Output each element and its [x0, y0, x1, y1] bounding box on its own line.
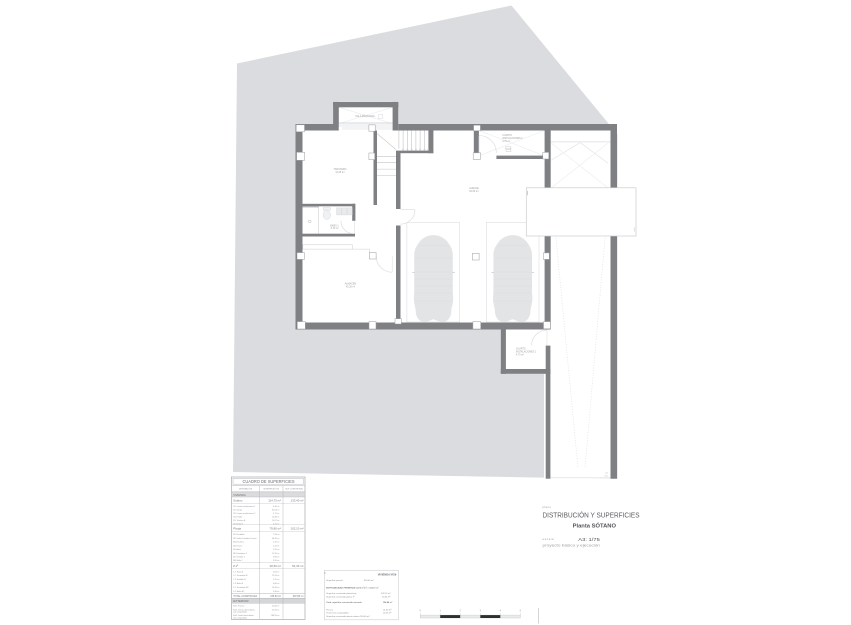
svg-text:(no computable): (no computable)	[233, 611, 247, 614]
svg-text:3,70 m²: 3,70 m²	[331, 227, 339, 230]
svg-text:Piscina: Piscina	[326, 609, 334, 611]
svg-text:1.6. Baño B2: 1.6. Baño B2	[233, 590, 244, 593]
svg-text:3: 3	[480, 609, 482, 613]
svg-text:21,40 m²: 21,40 m²	[383, 608, 392, 611]
svg-text:5: 5	[520, 609, 522, 613]
svg-text:proyecto básico y ejecución: proyecto básico y ejecución	[543, 544, 601, 548]
svg-text:10,35 m²: 10,35 m²	[272, 586, 280, 589]
svg-text:10,30 m²: 10,30 m²	[272, 515, 280, 518]
svg-text:4,75 m²: 4,75 m²	[502, 140, 510, 143]
svg-text:114,75 m²: 114,75 m²	[268, 499, 281, 503]
svg-text:418,00 m²: 418,00 m²	[364, 579, 374, 582]
svg-text:11,25 m²: 11,25 m²	[335, 171, 344, 174]
svg-text:B3. Escalera: B3. Escalera	[233, 541, 245, 544]
svg-text:1.1. Paso B: 1.1. Paso B	[233, 571, 244, 573]
svg-text:154,48 m²: 154,48 m²	[383, 601, 393, 604]
svg-text:1.2. Dormitorio B: 1.2. Dormitorio B	[233, 574, 248, 577]
svg-text:102,10 m²: 102,10 m²	[290, 526, 303, 530]
svg-text:INSTALACIONES 2: INSTALACIONES 2	[502, 137, 523, 140]
svg-text:TOTAL CONSTRUIDA: TOTAL CONSTRUIDA	[233, 595, 257, 598]
svg-text:B7. Vestidor 1: B7. Vestidor 1	[233, 556, 245, 559]
svg-text:3,90 m²: 3,90 m²	[273, 559, 280, 562]
svg-text:236,50 m²: 236,50 m²	[270, 595, 281, 598]
svg-text:Planta SÓTANO: Planta SÓTANO	[573, 521, 617, 529]
svg-text:29,50 m²: 29,50 m²	[270, 564, 281, 568]
svg-text:EXTERIOR: EXTERIOR	[233, 599, 249, 603]
svg-text:(no computable): (no computable)	[233, 617, 247, 620]
svg-text:102,13 m²: 102,13 m²	[381, 592, 391, 595]
svg-text:21,40 m²: 21,40 m²	[272, 605, 280, 608]
svg-text:22,55 m²: 22,55 m²	[383, 612, 392, 615]
svg-text:escala: escala	[543, 537, 554, 541]
svg-text:287,85 m²: 287,85 m²	[293, 595, 304, 598]
svg-text:Superficie construida abierta: Superficie construida abierta sótano 130…	[326, 615, 369, 618]
svg-text:44,45 m²: 44,45 m²	[272, 537, 280, 540]
svg-text:Sótano: Sótano	[233, 499, 243, 503]
svg-text:133,40 m²: 133,40 m²	[290, 499, 303, 503]
svg-text:DESIGNACIÓN: DESIGNACIÓN	[239, 488, 253, 491]
svg-text:2,80 m²: 2,80 m²	[273, 556, 280, 559]
svg-text:P.baja: P.baja	[233, 526, 241, 530]
svg-text:0: 0	[419, 609, 421, 613]
svg-text:DISTRIBUCIÓN Y SUPERFICIES: DISTRIBUCIÓN Y SUPERFICIES	[543, 511, 640, 520]
svg-text:B6. Dormitorio 1: B6. Dormitorio 1	[233, 552, 247, 555]
svg-text:2: 2	[459, 609, 461, 613]
svg-text:4,30 m²: 4,30 m²	[273, 590, 280, 593]
svg-text:62,56 m²: 62,56 m²	[272, 508, 280, 511]
svg-text:4,75 m²: 4,75 m²	[516, 353, 524, 356]
svg-text:10,97 m²: 10,97 m²	[272, 519, 280, 522]
svg-text:S4. Pasillo: S4. Pasillo	[233, 516, 242, 518]
svg-text:4,60 m²: 4,60 m²	[273, 582, 280, 585]
svg-text:Total superficie construida vi: Total superficie construida vivienda	[326, 601, 362, 604]
svg-text:S1. Cuarto instalaciones 1: S1. Cuarto instalaciones 1	[233, 505, 255, 508]
svg-text:B8. Baño 1: B8. Baño 1	[233, 559, 242, 562]
svg-text:Ext1. Piscina: Ext1. Piscina	[233, 605, 245, 608]
svg-text:52,36 m²: 52,36 m²	[382, 595, 391, 598]
svg-text:B1. Recibidor: B1. Recibidor	[233, 533, 245, 536]
svg-text:VIVIENDA Nº29: VIVIENDA Nº29	[378, 572, 397, 576]
svg-text:Superficie parcela: Superficie parcela	[326, 579, 343, 582]
svg-text:1.3. Vestidor B: 1.3. Vestidor B	[233, 578, 246, 581]
svg-text:1: 1	[439, 609, 441, 613]
svg-text:Superficie construida planta b: Superficie construida planta baja	[326, 592, 357, 595]
svg-text:S5. Trastero B: S5. Trastero B	[233, 519, 246, 522]
svg-text:11,35 m²: 11,35 m²	[272, 552, 280, 555]
svg-text:INSTALACIONES 1: INSTALACIONES 1	[516, 351, 537, 354]
svg-text:Porche (no computable): Porche (no computable)	[326, 612, 348, 615]
svg-text:BAÑO 1: BAÑO 1	[330, 224, 339, 227]
svg-text:1,35 m²: 1,35 m²	[273, 544, 280, 547]
svg-text:plano: plano	[543, 505, 552, 509]
svg-text:4: 4	[500, 609, 502, 613]
svg-text:CUARTO: CUARTO	[502, 134, 512, 137]
svg-text:5,15 m²: 5,15 m²	[273, 541, 280, 544]
svg-text:25,35 m²: 25,35 m²	[272, 608, 280, 611]
svg-text:VIVIENDA: VIVIENDA	[233, 493, 246, 497]
svg-text:B2. Salón-Comedor-Cocina: B2. Salón-Comedor-Cocina	[233, 537, 257, 540]
svg-text:79,80 m²: 79,80 m²	[270, 526, 281, 530]
svg-text:B5. Aseo: B5. Aseo	[233, 548, 241, 551]
svg-text:S2. Garaje: S2. Garaje	[233, 508, 242, 511]
svg-text:pte: pte	[606, 472, 609, 475]
svg-text:3,15 m²: 3,15 m²	[273, 578, 280, 581]
svg-text:42,35 m²: 42,35 m²	[346, 285, 356, 288]
svg-text:15,20 m²: 15,20 m²	[272, 574, 280, 577]
svg-text:SUPERFICIE ÚTIL: SUPERFICIE ÚTIL	[263, 488, 279, 491]
svg-text:CUARTO: CUARTO	[516, 348, 526, 351]
svg-text:188,90 m²: 188,90 m²	[271, 614, 280, 617]
svg-text:2,90 m²: 2,90 m²	[273, 548, 280, 551]
svg-text:A3: 1/75: A3: 1/75	[578, 537, 600, 543]
svg-text:SUP. CONSTRUIDA: SUP. CONSTRUIDA	[285, 488, 303, 491]
svg-text:Superficie construida planta 1: Superficie construida planta 1ª	[326, 595, 354, 598]
svg-text:1.4. Baño B: 1.4. Baño B	[233, 582, 244, 585]
svg-text:62,60 m²: 62,60 m²	[469, 190, 479, 193]
svg-text:SALA MÁQUINAS: SALA MÁQUINAS	[355, 115, 375, 118]
svg-text:1.5. Dormitorio B2: 1.5. Dormitorio B2	[233, 586, 248, 589]
svg-text:7,90 m²: 7,90 m²	[273, 533, 280, 536]
svg-text:S3. Cuarto instalaciones 2: S3. Cuarto instalaciones 2	[233, 512, 255, 515]
svg-text:3,90 m²: 3,90 m²	[273, 570, 280, 573]
svg-text:B4. Paso 1: B4. Paso 1	[233, 545, 242, 547]
svg-text:52,36 m²: 52,36 m²	[292, 564, 303, 568]
svg-text:EDIFICABILIDAD PERMITIDA 0,27: EDIFICABILIDAD PERMITIDA 0,274 m²/m² = 1…	[326, 586, 379, 589]
svg-text:4,77 m²: 4,77 m²	[273, 512, 280, 515]
svg-text:15%: 15%	[604, 475, 608, 477]
svg-text:CUADRO DE SUPERFICIES: CUADRO DE SUPERFICIES	[243, 479, 295, 484]
svg-text:4,30 m²: 4,30 m²	[273, 505, 280, 508]
